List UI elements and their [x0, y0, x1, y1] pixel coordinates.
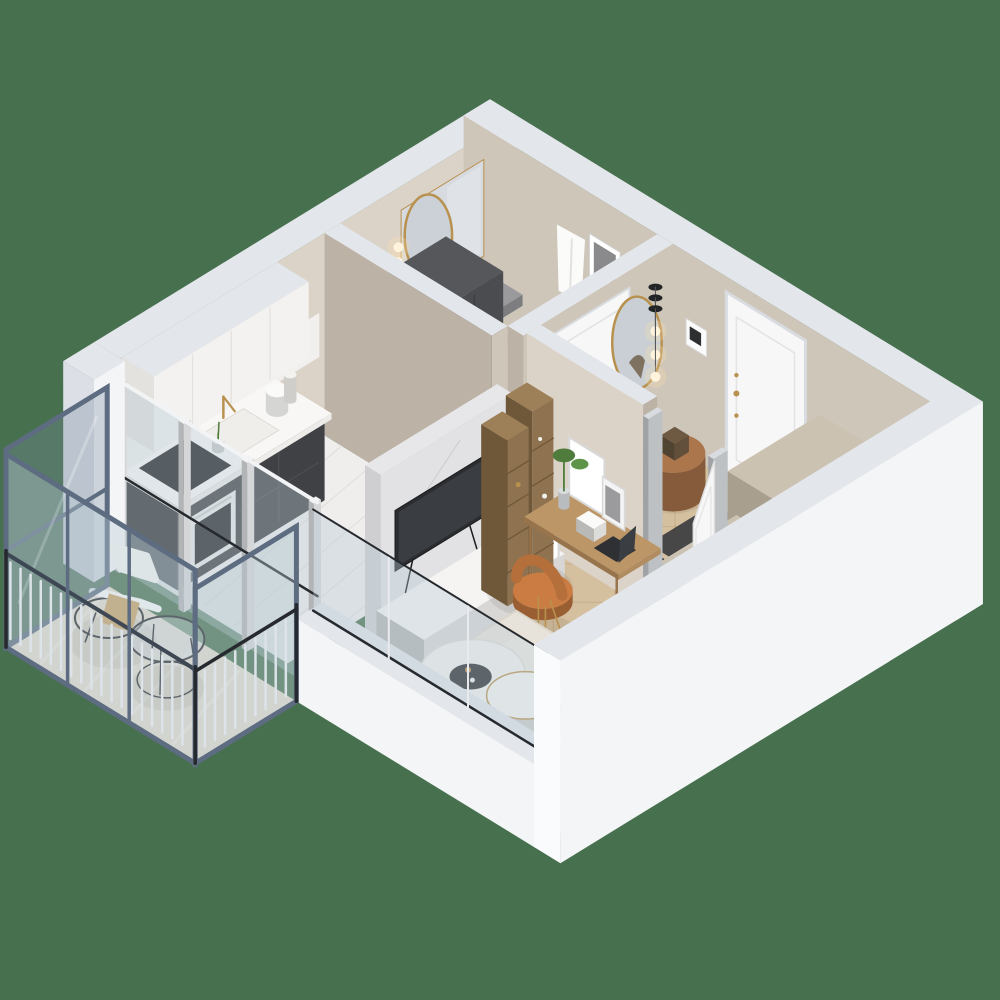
floor-plan-render	[0, 0, 1000, 1000]
paper-towel-roll	[284, 371, 296, 404]
apartment-isometric-scene	[0, 0, 1000, 1000]
